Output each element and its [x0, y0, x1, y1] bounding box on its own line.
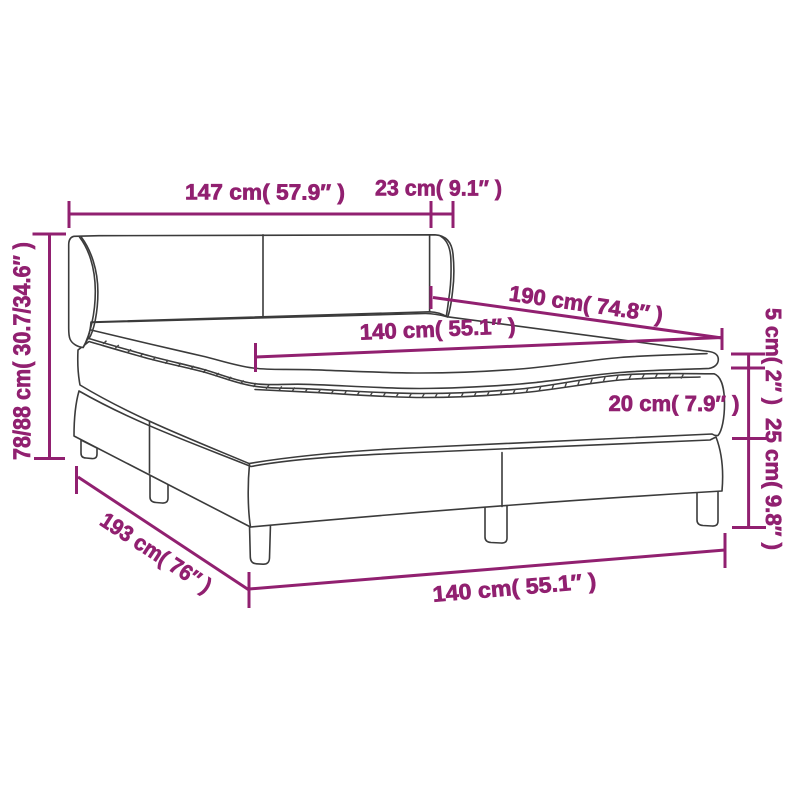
svg-text:5 cm( 2″ ): 5 cm( 2″ ): [761, 308, 786, 405]
svg-text:78/88 cm( 30.7/34.6″ ): 78/88 cm( 30.7/34.6″ ): [9, 242, 36, 460]
svg-text:23 cm( 9.1″ ): 23 cm( 9.1″ ): [375, 175, 502, 200]
svg-text:25 cm( 9.8″ ): 25 cm( 9.8″ ): [761, 418, 786, 550]
svg-text:147 cm( 57.9″ ): 147 cm( 57.9″ ): [185, 179, 345, 204]
svg-text:20 cm( 7.9″ ): 20 cm( 7.9″ ): [608, 391, 739, 416]
